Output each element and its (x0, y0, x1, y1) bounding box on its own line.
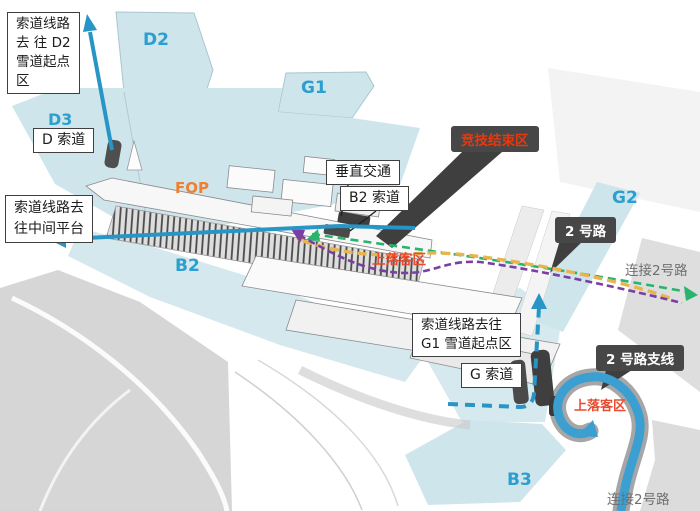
callout-road2: 2 号路 (555, 217, 616, 243)
callout-d2-route: 索道线路 去 往 D2 雪道起点 区 (7, 12, 80, 94)
callout-d2-route-line2: 去 往 D2 (16, 34, 71, 53)
region-label-b2: B2 (175, 256, 200, 276)
venue-map: 索道线路 去 往 D2 雪道起点 区 D 索道 索道线路去 往中间平台 垂直交通… (0, 0, 700, 511)
callout-g-cable: G 索道 (461, 363, 522, 388)
connect-road2-label-2: 连接2号路 (607, 488, 670, 508)
callout-mid-platform: 索道线路去 往中间平台 (5, 195, 93, 243)
callout-d-cable: D 索道 (33, 128, 94, 153)
site-map-drawing (0, 0, 700, 511)
callout-g1-route-line1: 索道线路去往 (421, 316, 512, 335)
callout-g1-route: 索道线路去往 G1 雪道起点区 (412, 313, 521, 357)
callout-finish-area: 竞技结束区 (451, 126, 539, 152)
region-label-d2: D2 (143, 30, 169, 50)
callout-g1-route-line2: G1 雪道起点区 (421, 335, 512, 354)
callout-b2-cable: B2 索道 (340, 186, 409, 211)
callout-d2-route-line4: 区 (16, 72, 71, 91)
region-label-fop: FOP (175, 179, 209, 197)
callout-vertical-transport: 垂直交通 (326, 160, 400, 185)
callout-road2-branch: 2 号路支线 (596, 345, 684, 371)
region-label-g1: G1 (301, 78, 327, 98)
callout-mid-platform-line2: 往中间平台 (14, 219, 84, 240)
connect-road2-label-1: 连接2号路 (625, 259, 688, 279)
callout-mid-platform-line1: 索道线路去 (14, 198, 84, 219)
region-label-d3: D3 (48, 110, 72, 129)
region-label-b3: B3 (507, 470, 532, 490)
dropoff-label-1: 上落客区 (372, 248, 426, 268)
callout-d2-route-line1: 索道线路 (16, 15, 71, 34)
dropoff-label-2: 上落客区 (574, 395, 626, 414)
callout-d2-route-line3: 雪道起点 (16, 53, 71, 72)
region-label-g2: G2 (612, 188, 638, 208)
